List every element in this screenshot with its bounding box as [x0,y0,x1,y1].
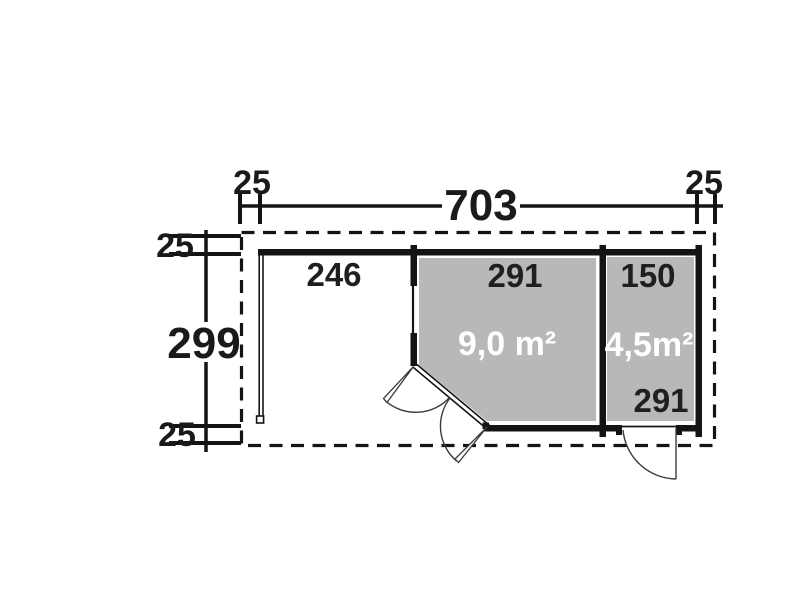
double-door-leaf [455,427,487,463]
floor-plan-drawing: 25 703 25 25 299 25 [0,0,800,600]
dimension-label-top-overhang: 25 [156,227,194,265]
dimension-label-total-width: 703 [444,181,517,230]
side-room-area-label: 4,5m² [605,326,694,364]
double-door-swing-arc [385,397,450,412]
bottom-wall-left-segment [484,425,622,432]
main-room-width-label: 291 [487,257,542,294]
door-jamb [676,425,682,435]
right-wall [696,245,703,437]
floor-plan-canvas: 25 703 25 25 299 25 [0,0,800,600]
dimension-label-left-overhang: 25 [233,164,271,202]
dimension-top: 25 703 25 [233,164,723,230]
porch-width-label: 246 [306,256,361,293]
dimension-left: 25 299 25 [156,227,241,454]
dimension-label-right-overhang: 25 [685,164,723,202]
main-room-left-wall-upper [411,245,418,286]
dimension-label-total-depth: 299 [167,319,240,368]
diagonal-wall-end [411,359,418,366]
dimension-label-bottom-overhang: 25 [158,416,196,454]
double-door-swing-arc [440,398,456,461]
side-room-width-label: 150 [620,257,675,294]
top-wall [258,249,702,256]
side-door-swing-arc [623,430,676,479]
porch-post [257,416,264,423]
double-door-leaf [384,367,414,403]
main-room-area-label: 9,0 m² [458,325,556,363]
door-jamb [616,425,622,435]
side-room-depth-label: 291 [633,382,688,419]
